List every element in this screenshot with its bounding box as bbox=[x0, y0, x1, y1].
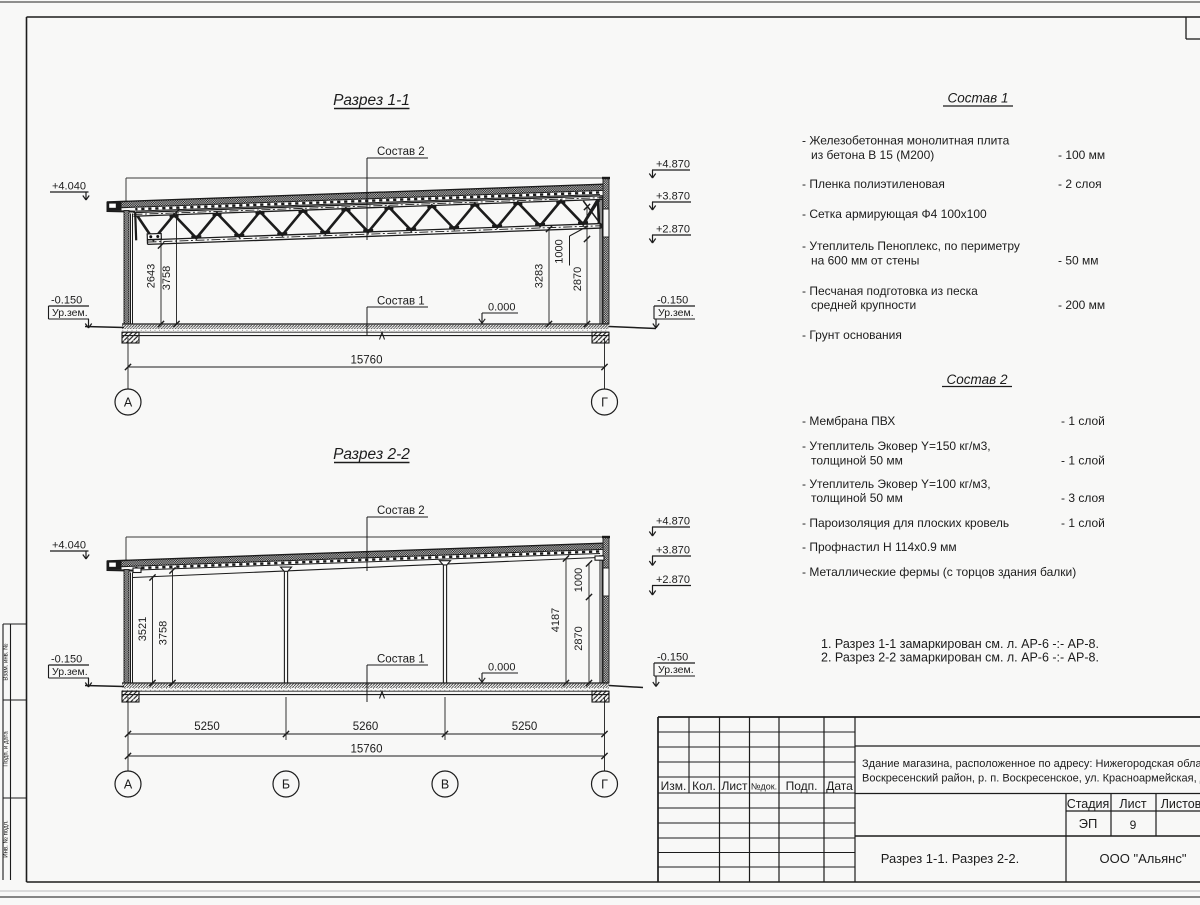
svg-text:- Металлические фермы (с торцо: - Металлические фермы (с торцов здания б… bbox=[802, 565, 1076, 579]
svg-text:Разрез 2-2: Разрез 2-2 bbox=[333, 446, 410, 463]
svg-text:на 600 мм от стены: на 600 мм от стены bbox=[811, 254, 919, 268]
svg-text:+2.870: +2.870 bbox=[656, 574, 690, 586]
svg-text:-0.150: -0.150 bbox=[657, 295, 688, 307]
svg-text:средней крупности: средней крупности bbox=[811, 298, 916, 312]
svg-text:- Песчаная подготовка из песка: - Песчаная подготовка из песка bbox=[802, 284, 978, 298]
svg-text:3521: 3521 bbox=[137, 617, 149, 641]
svg-text:1. Разрез 1-1 замаркирован см.: 1. Разрез 1-1 замаркирован см. л. АР-6 -… bbox=[821, 637, 1099, 651]
svg-text:- 1 слой: - 1 слой bbox=[1061, 516, 1105, 530]
svg-text:Разрез 1-1. Разрез 2-2.: Разрез 1-1. Разрез 2-2. bbox=[881, 851, 1019, 866]
svg-text:- 2 слоя: - 2 слоя bbox=[1058, 177, 1102, 191]
svg-text:1000: 1000 bbox=[573, 568, 585, 592]
svg-text:3758: 3758 bbox=[158, 621, 170, 645]
svg-text:+4.040: +4.040 bbox=[52, 181, 86, 193]
svg-text:толщиной 50 мм: толщиной 50 мм bbox=[811, 491, 903, 505]
svg-text:- Профнастил Н 114х0.9 мм: - Профнастил Н 114х0.9 мм bbox=[802, 540, 957, 554]
svg-text:- Грунт основания: - Грунт основания bbox=[802, 328, 902, 342]
svg-text:- Мембрана ПВХ: - Мембрана ПВХ bbox=[802, 414, 895, 428]
svg-text:- 50 мм: - 50 мм bbox=[1058, 254, 1099, 268]
svg-text:3758: 3758 bbox=[161, 266, 173, 290]
svg-text:Инв. № подл.: Инв. № подл. bbox=[3, 820, 10, 858]
svg-text:-0.150: -0.150 bbox=[51, 295, 82, 307]
svg-text:Изм.: Изм. bbox=[661, 779, 687, 793]
svg-text:2870: 2870 bbox=[572, 267, 584, 291]
svg-text:4187: 4187 bbox=[550, 608, 562, 632]
svg-text:0.000: 0.000 bbox=[488, 302, 516, 314]
svg-text:Стадия: Стадия bbox=[1067, 797, 1110, 811]
svg-text:Кол.: Кол. bbox=[692, 779, 716, 793]
svg-text:из бетона В 15 (М200): из бетона В 15 (М200) bbox=[811, 148, 934, 162]
svg-text:Состав 2: Состав 2 bbox=[377, 146, 425, 158]
svg-text:- Железобетонная монолитная п: - Железобетонная монолитная плита bbox=[802, 134, 1010, 148]
svg-text:Подп.: Подп. bbox=[786, 779, 818, 793]
svg-text:Г: Г bbox=[601, 396, 608, 410]
svg-text:Ур.зем.: Ур.зем. bbox=[52, 666, 88, 678]
svg-text:Разрез 1-1: Разрез 1-1 bbox=[333, 92, 410, 109]
svg-text:Б: Б bbox=[282, 778, 290, 792]
svg-text:- 1 слой: - 1 слой bbox=[1061, 454, 1105, 468]
svg-text:0.000: 0.000 bbox=[488, 662, 516, 674]
svg-text:2. Разрез 2-2 замаркирован см.: 2. Разрез 2-2 замаркирован см. л. АР-6 -… bbox=[821, 651, 1099, 665]
svg-text:+4.870: +4.870 bbox=[656, 516, 690, 528]
svg-text:ЭП: ЭП bbox=[1079, 816, 1098, 831]
svg-text:- Пленка полиэтиленовая: - Пленка полиэтиленовая bbox=[802, 177, 945, 191]
svg-text:Лист: Лист bbox=[721, 779, 748, 793]
svg-text:15760: 15760 bbox=[351, 744, 383, 756]
svg-text:- Утеплитель Эковер Y=150 кг/м: - Утеплитель Эковер Y=150 кг/м3, bbox=[802, 439, 991, 453]
svg-text:15760: 15760 bbox=[351, 355, 383, 367]
svg-text:Ур.зем.: Ур.зем. bbox=[658, 307, 694, 319]
svg-text:Состав 2: Состав 2 bbox=[947, 372, 1008, 387]
svg-text:толщиной 50 мм: толщиной 50 мм bbox=[811, 454, 903, 468]
svg-text:ООО "Альянс": ООО "Альянс" bbox=[1100, 851, 1187, 866]
svg-text:- Утеплитель Эковер Y=100 кг/м: - Утеплитель Эковер Y=100 кг/м3, bbox=[802, 477, 991, 491]
svg-text:Дата: Дата bbox=[826, 779, 853, 793]
svg-text:Листов: Листов bbox=[1161, 797, 1200, 811]
svg-text:- Сетка армирующая Ф4 100х100: - Сетка армирующая Ф4 100х100 bbox=[802, 207, 987, 221]
svg-text:Состав 2: Состав 2 bbox=[377, 505, 425, 517]
svg-text:-0.150: -0.150 bbox=[51, 654, 82, 666]
svg-text:- 3 слоя: - 3 слоя bbox=[1061, 491, 1105, 505]
svg-text:Здание магазина, расположенное: Здание магазина, расположенное по адресу… bbox=[862, 758, 1200, 770]
svg-text:Состав 1: Состав 1 bbox=[377, 296, 425, 308]
svg-text:Лист: Лист bbox=[1119, 797, 1146, 811]
svg-text:9: 9 bbox=[1130, 818, 1137, 832]
svg-text:А: А bbox=[124, 778, 133, 792]
svg-text:3283: 3283 bbox=[534, 264, 546, 288]
svg-text:В: В bbox=[441, 778, 449, 792]
svg-text:1000: 1000 bbox=[554, 239, 566, 263]
svg-text:-0.150: -0.150 bbox=[657, 652, 688, 664]
svg-text:+3.870: +3.870 bbox=[656, 545, 690, 557]
svg-text:- Пароизоляция для плоских кро: - Пароизоляция для плоских кровель bbox=[802, 516, 1009, 530]
svg-text:5250: 5250 bbox=[194, 721, 220, 733]
svg-text:Состав 1: Состав 1 bbox=[377, 654, 425, 666]
svg-text:2643: 2643 bbox=[146, 264, 158, 288]
svg-text:Воскресенский район, р. п. Вос: Воскресенский район, р. п. Воскресенское… bbox=[862, 773, 1200, 785]
svg-text:+4.870: +4.870 bbox=[656, 159, 690, 171]
svg-text:5260: 5260 bbox=[353, 721, 379, 733]
svg-text:Состав 1: Состав 1 bbox=[948, 91, 1009, 106]
svg-text:Ур.зем.: Ур.зем. bbox=[52, 307, 88, 319]
svg-text:+4.040: +4.040 bbox=[52, 540, 86, 552]
svg-text:Ур.зем.: Ур.зем. bbox=[658, 664, 694, 676]
svg-text:- 1 слой: - 1 слой bbox=[1061, 414, 1105, 428]
svg-text:А: А bbox=[124, 396, 133, 410]
svg-text:- 200 мм: - 200 мм bbox=[1058, 298, 1105, 312]
svg-text:Взам. инв. №: Взам. инв. № bbox=[3, 643, 10, 680]
svg-text:+2.870: +2.870 bbox=[656, 224, 690, 236]
svg-text:Подп. и дата: Подп. и дата bbox=[4, 731, 10, 767]
svg-text:№док.: №док. bbox=[751, 782, 777, 792]
svg-text:- Утеплитель Пеноплекс, по пер: - Утеплитель Пеноплекс, по периметру bbox=[802, 239, 1020, 253]
svg-text:- 100 мм: - 100 мм bbox=[1058, 148, 1105, 162]
svg-text:2870: 2870 bbox=[573, 626, 585, 650]
svg-text:5250: 5250 bbox=[512, 721, 538, 733]
svg-text:+3.870: +3.870 bbox=[656, 191, 690, 203]
svg-text:Г: Г bbox=[601, 778, 608, 792]
